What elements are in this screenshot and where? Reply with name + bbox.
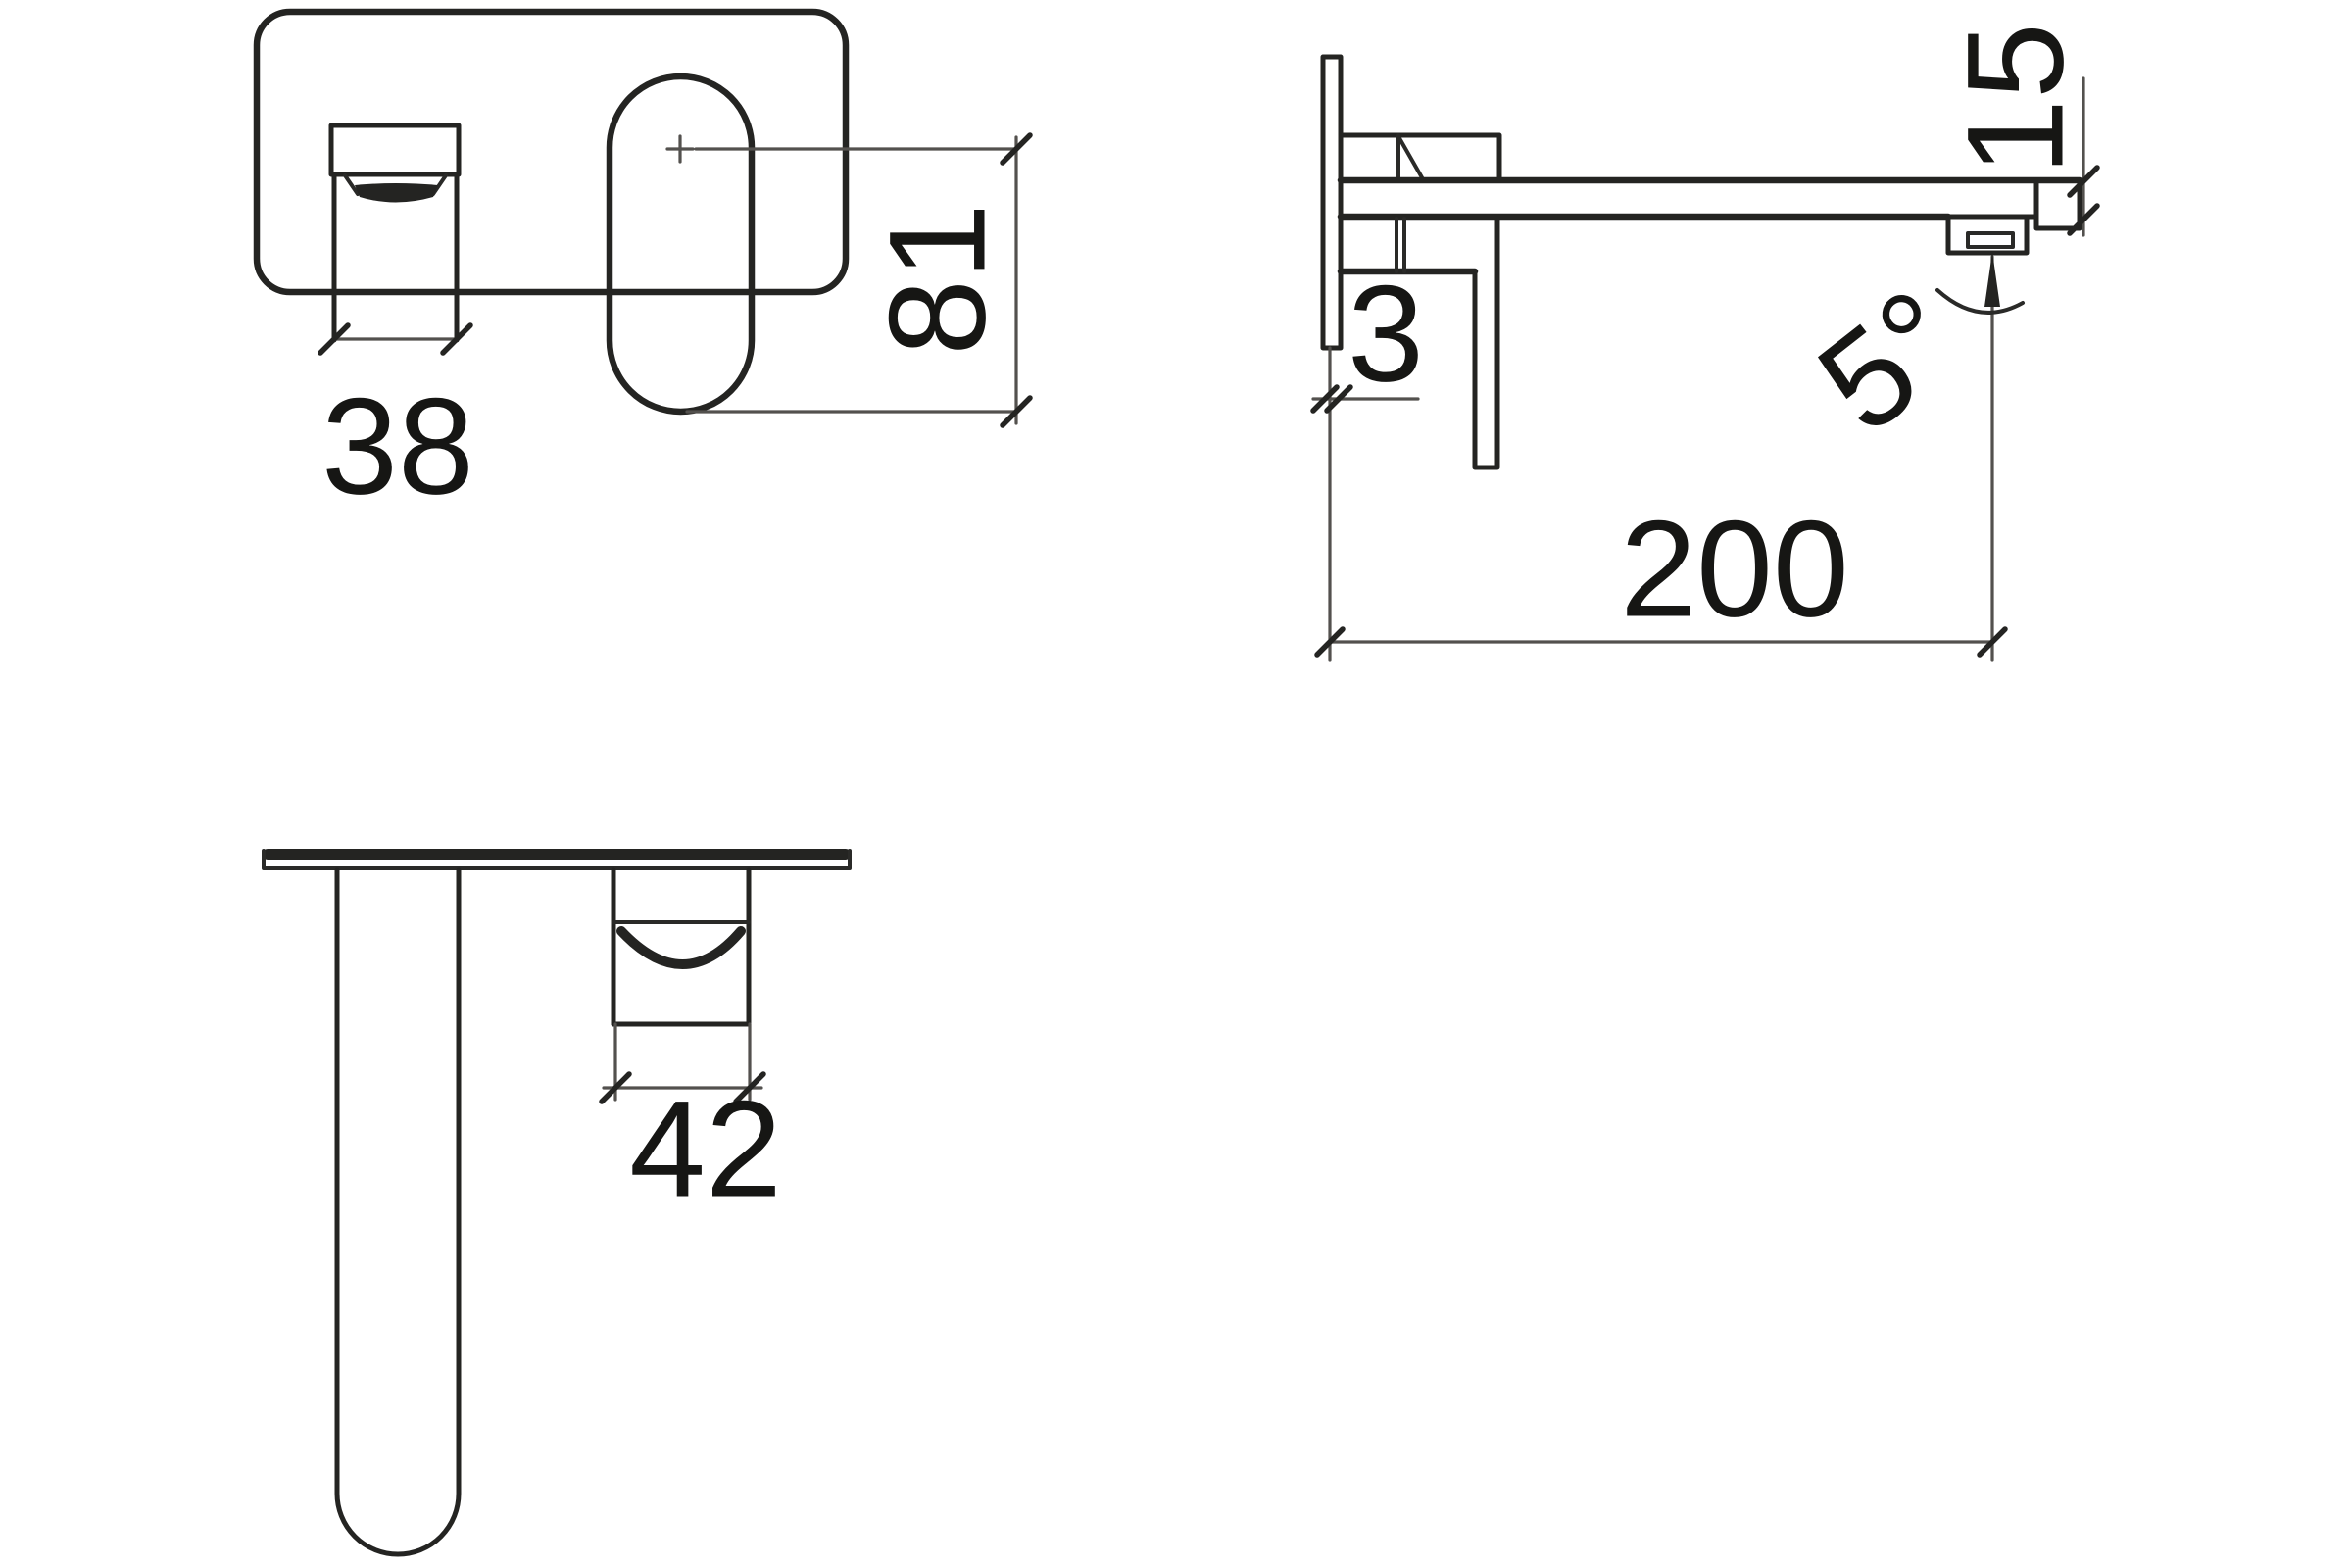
front-spout-aerator-band — [355, 183, 438, 203]
side-wall-plate — [1323, 57, 1341, 348]
dim-200: 200 — [1317, 492, 2005, 656]
front-wall-plate-outline — [257, 12, 846, 292]
dim-42: 42 — [602, 1024, 782, 1226]
front-handle-escutcheon — [610, 76, 752, 412]
dim-200-label: 200 — [1620, 492, 1849, 646]
dim-81-label: 81 — [860, 203, 1014, 356]
side-valve-body — [1341, 135, 1499, 180]
bottom-handle — [613, 870, 749, 1024]
front-spout-cap — [331, 125, 459, 174]
dim-15: 15 — [1938, 23, 2098, 235]
faucet-dimension-drawing: 81 38 — [0, 0, 2352, 1568]
side-spout — [1341, 180, 2080, 253]
side-aerator-insert — [1968, 233, 2013, 247]
bottom-wall-plate — [263, 849, 851, 868]
dim-38: 38 — [320, 325, 474, 523]
dim-15-label: 15 — [1938, 23, 2092, 175]
front-center-mark — [667, 136, 693, 162]
dim-38-label: 38 — [321, 369, 474, 523]
front-view: 81 38 — [257, 12, 1030, 523]
technical-drawing-page: 81 38 — [0, 0, 2352, 1568]
angle-5deg-label: 5° — [1790, 260, 1988, 462]
front-spout — [331, 125, 459, 340]
dim-42-label: 42 — [629, 1072, 782, 1226]
bottom-handle-arc — [621, 931, 741, 964]
front-spout-lip-left — [345, 175, 358, 194]
bottom-spout — [337, 870, 459, 1554]
dim-3-label: 3 — [1347, 257, 1424, 411]
side-view: 3 5° 15 200 — [1313, 23, 2097, 660]
angle-5deg-arc — [1937, 290, 2023, 313]
angle-5deg-arrow — [1984, 252, 2000, 307]
side-spout-end-cap — [2036, 180, 2080, 228]
bottom-view: 42 — [263, 849, 851, 1554]
